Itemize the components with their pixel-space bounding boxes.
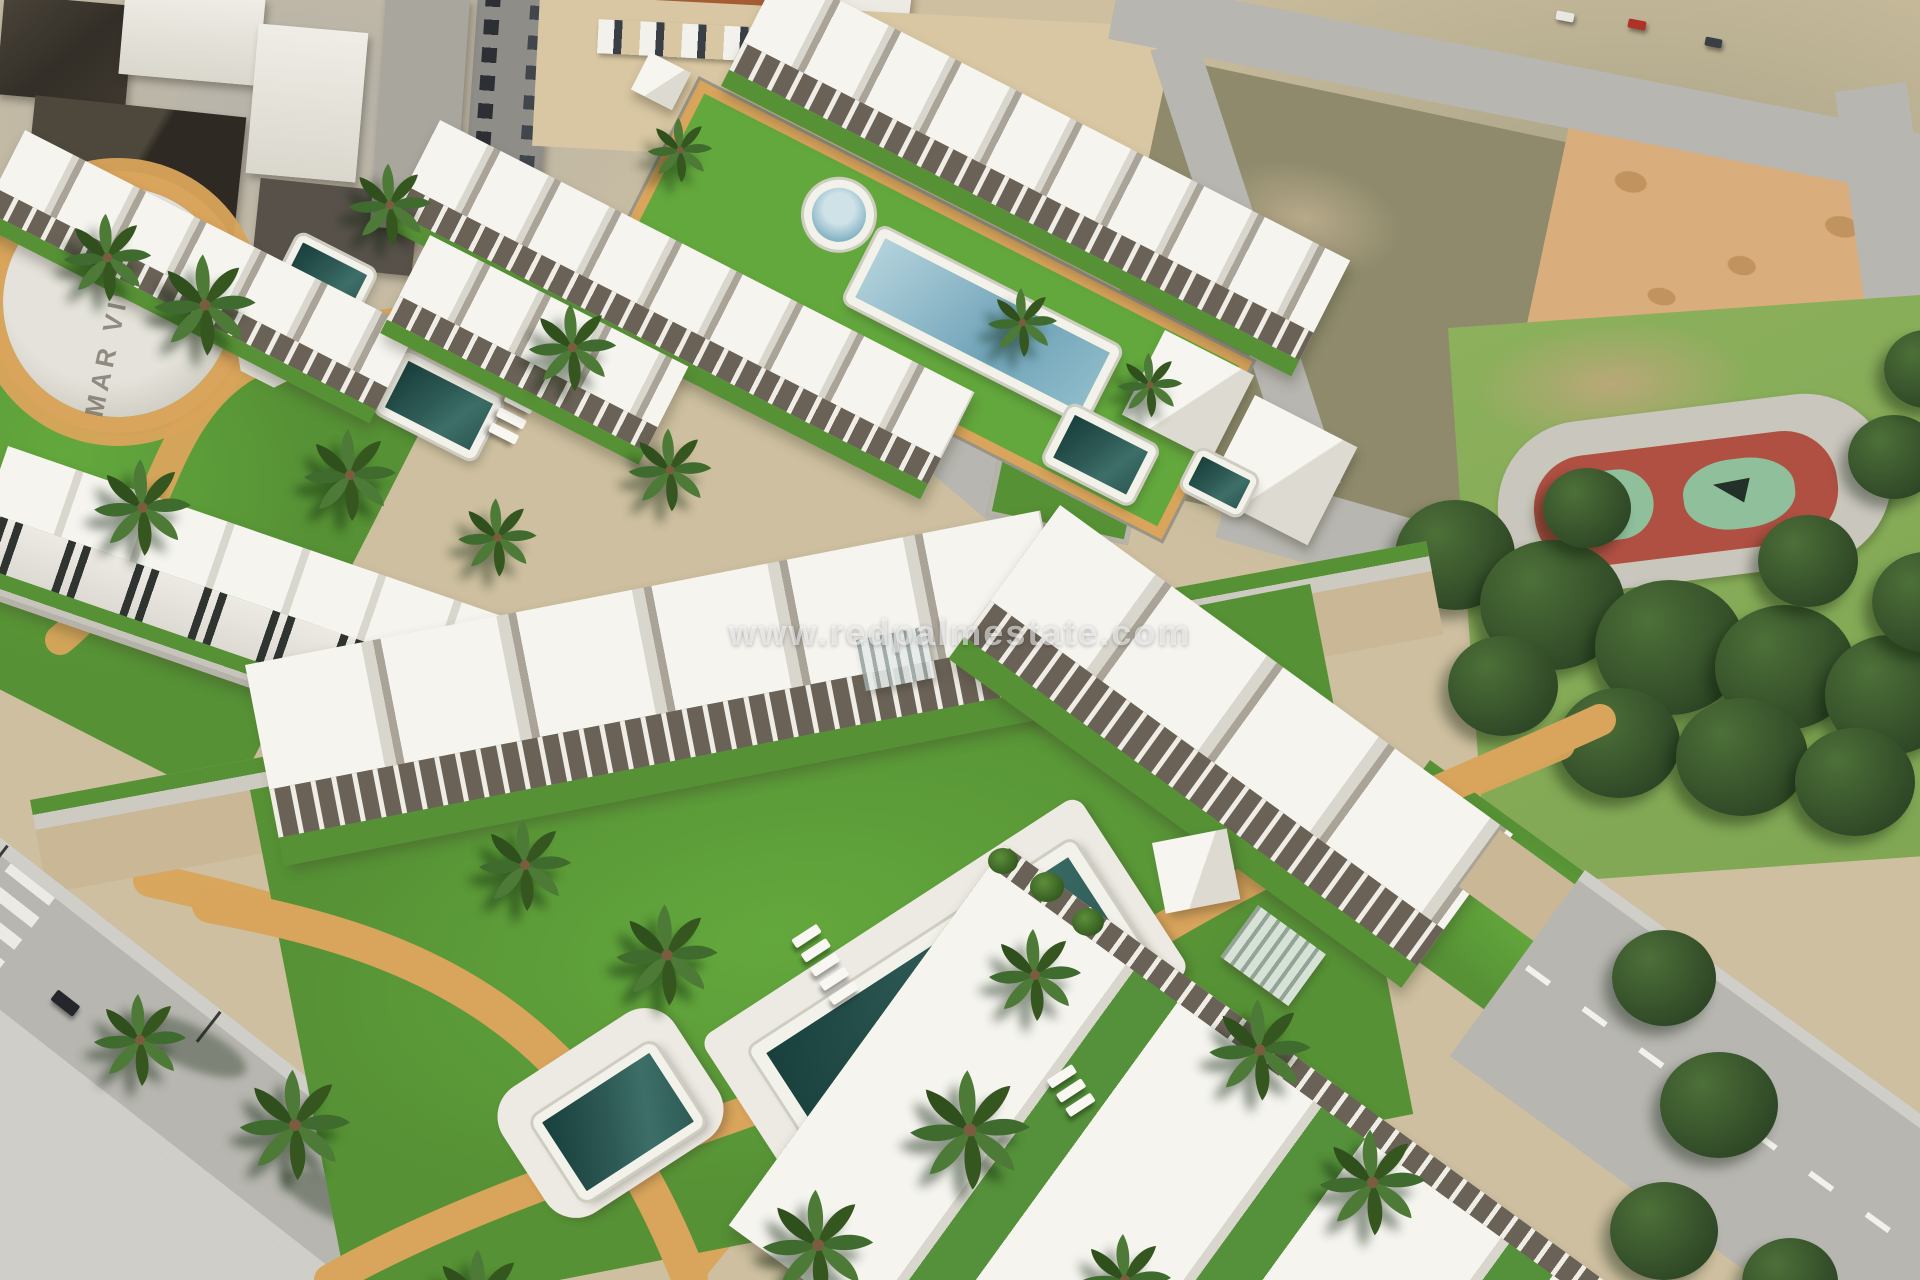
pool-planter: [1030, 872, 1064, 902]
palm-tree: [425, 1245, 535, 1280]
palm-tree: [60, 210, 155, 305]
palm-tree: [758, 1185, 878, 1280]
watermark: www.redpalmestate.com: [729, 612, 1192, 654]
palm-tree: [612, 900, 722, 1010]
palm-tree: [1315, 1125, 1430, 1240]
pool-kiosk: [1152, 828, 1240, 913]
palm-tree: [475, 815, 575, 915]
pool-planter: [988, 848, 1018, 874]
palm-tree: [1075, 1230, 1175, 1280]
palm-tree: [455, 495, 540, 580]
parked-car: [50, 989, 80, 1016]
roadside-tree: [1612, 930, 1716, 1026]
town-building: [246, 23, 369, 182]
town-building: [118, 0, 265, 86]
palm-tree: [300, 425, 400, 525]
palm-tree: [90, 990, 190, 1090]
palm-tree: [90, 455, 195, 560]
roadside-tree: [1610, 1182, 1718, 1280]
palm-tree: [1205, 995, 1315, 1105]
palm-tree: [1115, 350, 1185, 420]
palm-tree: [985, 925, 1085, 1025]
palm-tree: [150, 250, 260, 360]
palm-tree: [905, 1065, 1035, 1195]
palm-tree: [625, 425, 715, 515]
palm-tree: [525, 300, 620, 395]
roadside-tree: [1660, 1052, 1778, 1158]
crosswalk: [0, 863, 55, 994]
palm-tree: [235, 1065, 355, 1185]
aerial-render-scene: MAR VILLAGE: [0, 0, 1920, 1280]
palm-tree: [345, 160, 435, 250]
palm-tree: [985, 285, 1060, 360]
town-building: [0, 0, 134, 105]
palm-tree: [645, 115, 715, 185]
